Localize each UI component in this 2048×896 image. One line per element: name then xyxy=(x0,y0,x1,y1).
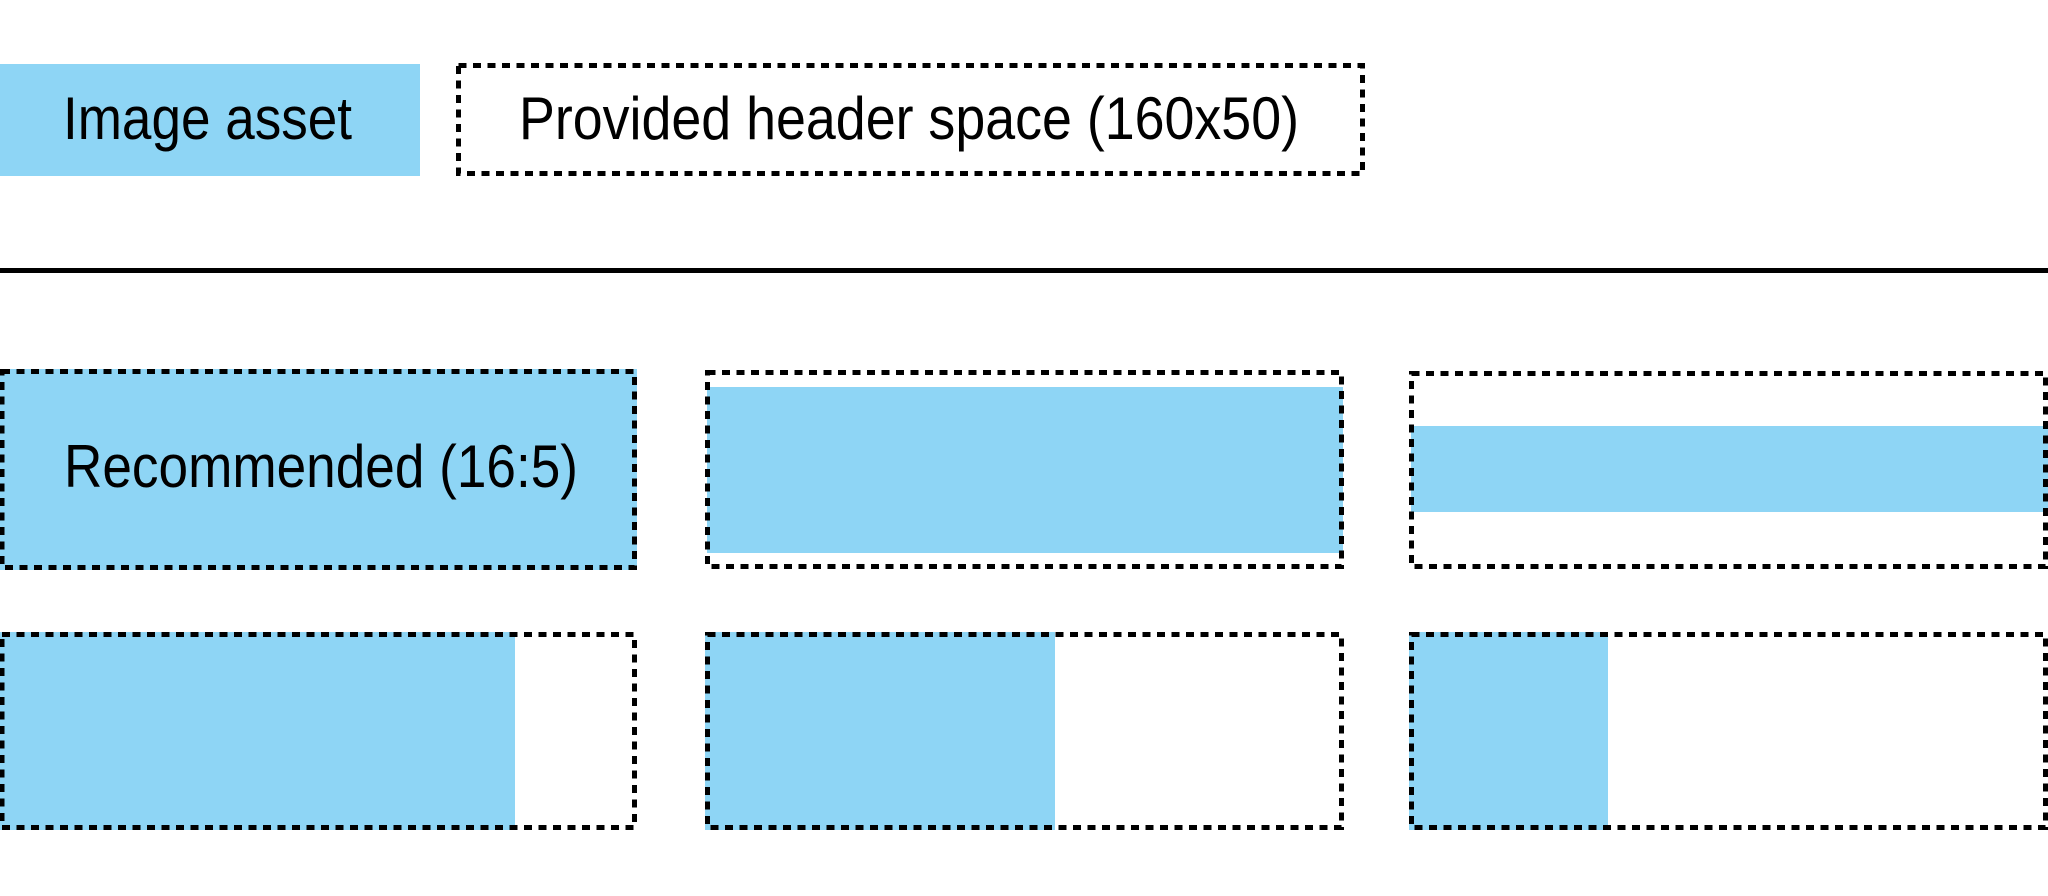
svg-text:Recommended (16:5): Recommended (16:5) xyxy=(64,433,578,500)
svg-text:Image asset: Image asset xyxy=(63,85,352,152)
svg-text:Provided header space (160x50): Provided header space (160x50) xyxy=(519,85,1299,152)
